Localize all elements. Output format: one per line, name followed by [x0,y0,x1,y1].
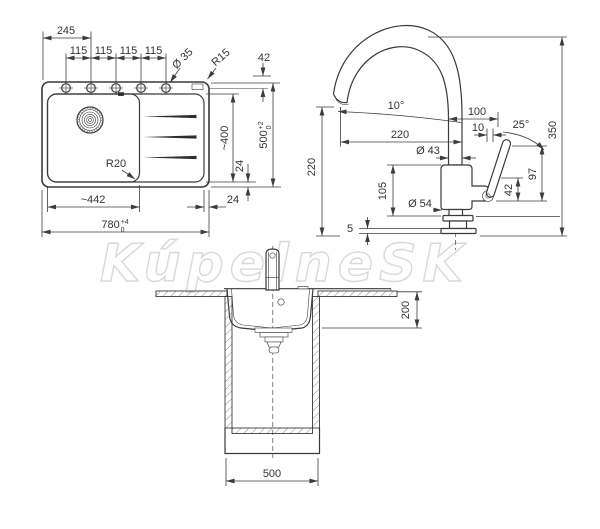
dim-bowl-corner-radius: R20 [106,158,126,170]
base-plate [441,229,476,234]
dim-body-diameter: Ø 43 [416,145,440,157]
dim-overall-depth-tol-plus: +2 [258,121,265,129]
dim-base-diameter: Ø 54 [408,198,432,210]
countertop-left [156,291,227,297]
dim-overall-width-tol-minus: 0 [121,227,125,234]
dim-handle-angle: 25° [513,119,530,131]
bowl-edge-mark [118,92,124,96]
dim-hole-pitch-4: 115 [145,45,163,57]
dim-handle-top-height: 97 [527,168,539,180]
base-neck [450,221,467,229]
overflow-hole [278,299,284,305]
dim-body-height: 105 [377,182,389,200]
dim-handle-reach: 100 [468,106,486,118]
section-dimensions: 200 500 [226,292,422,486]
dim-overall-height: 350 [547,121,559,139]
dim-cabinet-width: 500 [263,468,281,480]
dim-overall-depth-value: 500 [258,130,270,148]
cabinet-wall-right [313,297,320,429]
dim-hole-pitch-3: 115 [120,45,138,57]
dim-overall-width-value: 780 [101,219,119,231]
sink-plan-view: 245 115 115 115 115 Ø 35 R15 [42,25,281,237]
dim-drainer-length: ~400 [219,126,231,151]
dim-handle-offset: 10 [472,122,484,134]
cabinet-wall-left [225,297,232,429]
dim-overall-depth: 500+20 [258,121,273,148]
technical-drawing-page: KúpelneSK [0,0,600,529]
dim-spout-reach: 220 [391,129,409,141]
rim-step [298,286,308,289]
faucet-body [441,165,489,210]
faucet-side-view: 10° 220 100 10 25° Ø 43 [306,26,567,250]
drain-assembly [255,328,292,353]
dim-hole-pitch-2: 115 [95,45,113,57]
dim-overall-depth-tol-minus: 0 [266,125,273,129]
countertop-right [318,291,397,297]
bowl-section-inner [232,289,310,328]
base-top-flange [443,216,473,222]
dim-corner-radius: R15 [209,47,232,69]
dim-bowl-depth: 200 [400,301,412,319]
cabinet-bottom [232,428,313,434]
drain-remote-knob [266,249,279,290]
faucet-spout [334,26,463,165]
drawing-canvas: 245 115 115 115 115 Ø 35 R15 [0,0,600,529]
dim-spout-angle: 10° [388,100,405,112]
dim-rim-width-v: 24 [234,160,246,172]
dim-hole-offset: 245 [57,25,75,37]
dim-overall-width-tol-plus: +4 [121,219,129,226]
cabinet-section-view: 200 500 [156,246,422,486]
dim-base-plate-thickness: 5 [347,223,353,235]
dim-spout-outlet-height: 220 [306,158,318,176]
dim-bowl-width: ~442 [81,194,106,206]
dim-rim-width-h: 24 [227,194,239,206]
dim-hole-pitch-1: 115 [70,45,88,57]
dim-hole-diameter: Ø 35 [170,46,195,71]
dim-rim-offset: 42 [258,52,270,64]
overflow-slot [192,84,203,90]
sink-outline [42,82,209,187]
dim-handle-pivot-height: 42 [503,184,515,196]
